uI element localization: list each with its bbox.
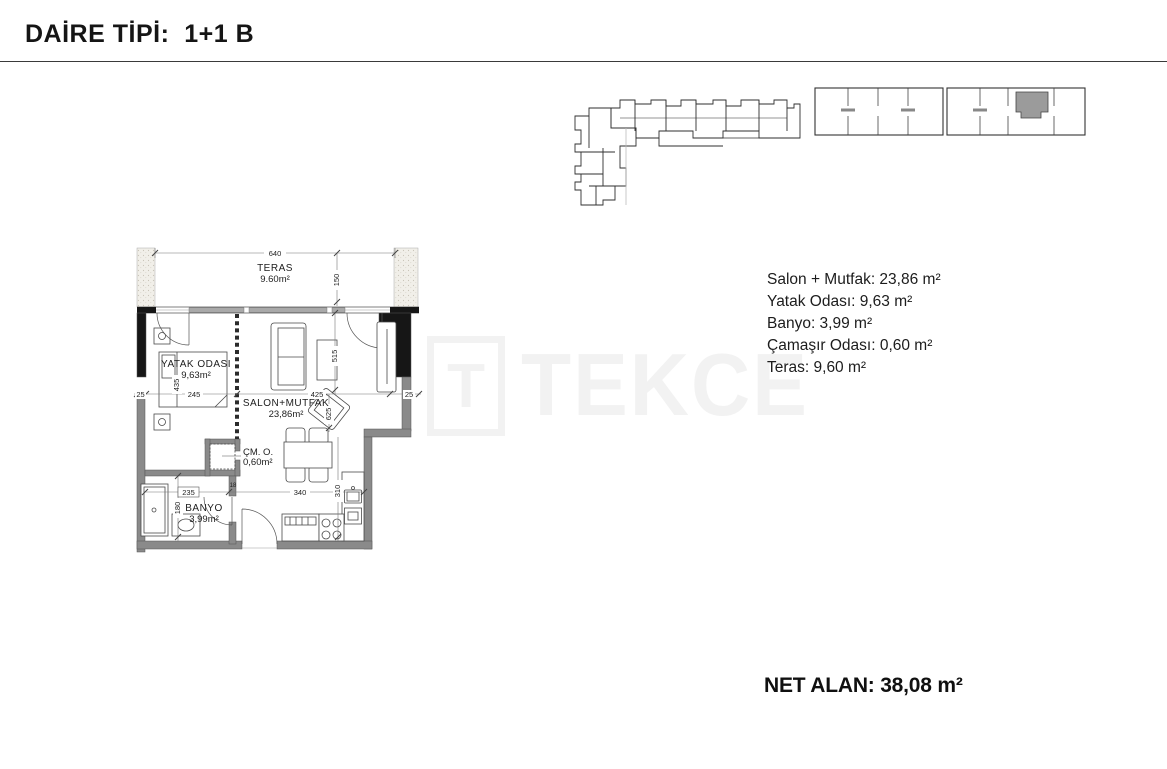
dim-310: 310 [333, 485, 342, 498]
block-plan-thumbnail [808, 84, 1090, 140]
dim-625: 625 [324, 408, 333, 421]
watermark-brand-text: TEKCE [521, 335, 809, 437]
room-area-banyo: 3,99m² [189, 514, 219, 525]
apartment-floor-plan: 640 150 TERAS 9.60m² [132, 244, 424, 560]
top-wall [137, 307, 419, 313]
area-line-yatak-odasi: Yatak Odası: 9,63 m² [767, 291, 941, 313]
room-label-banyo: BANYO [185, 503, 223, 514]
room-label-teras: TERAS [257, 263, 293, 274]
room-area-yatak: 9,63m² [181, 370, 211, 381]
dim-245: 245 [188, 390, 201, 399]
area-line-camasir-odasi: Çamaşır Odası: 0,60 m² [767, 335, 941, 357]
title-divider [0, 61, 1167, 62]
site-plan-thumbnail [563, 78, 808, 210]
dim-435: 435 [172, 379, 181, 392]
summary-net-alan: NET ALAN: 38,08 m² [764, 670, 1102, 702]
area-line-teras: Teras: 9,60 m² [767, 357, 941, 379]
dim-18: 18 [230, 483, 237, 489]
room-areas-list: Salon + Mutfak: 23,86 m² Yatak Odası: 9,… [767, 269, 941, 379]
dim-515: 515 [330, 350, 339, 363]
dim-340: 340 [294, 488, 307, 497]
watermark: T TEKCE [427, 336, 809, 436]
area-line-banyo: Banyo: 3,99 m² [767, 313, 941, 335]
summary-block: NET ALAN: 38,08 m² BALKONLU NET ALAN: 47… [764, 606, 1102, 769]
room-area-teras: 9.60m² [260, 274, 290, 285]
area-line-salon-mutfak: Salon + Mutfak: 23,86 m² [767, 269, 941, 291]
room-label-yatak: YATAK ODASI [161, 359, 231, 370]
dim-25-left: 25 [136, 390, 144, 399]
watermark-logo-letter: T [447, 351, 485, 422]
highlighted-unit [1016, 92, 1048, 118]
dim-25-right: 25 [405, 390, 413, 399]
room-area-salon: 23,86m² [269, 409, 304, 420]
room-area-camasir: 0,60m² [243, 457, 273, 468]
watermark-logo-box: T [427, 336, 505, 436]
dim-640: 640 [269, 249, 282, 258]
dim-150: 150 [332, 274, 341, 287]
dim-180: 180 [173, 502, 182, 515]
floorplan-page: DAİRE TİPİ: 1+1 B T TEKCE [0, 0, 1167, 769]
room-label-salon: SALON+MUTFAK [243, 398, 329, 409]
page-title: DAİRE TİPİ: 1+1 B [25, 20, 254, 49]
dim-235: 235 [182, 488, 195, 497]
